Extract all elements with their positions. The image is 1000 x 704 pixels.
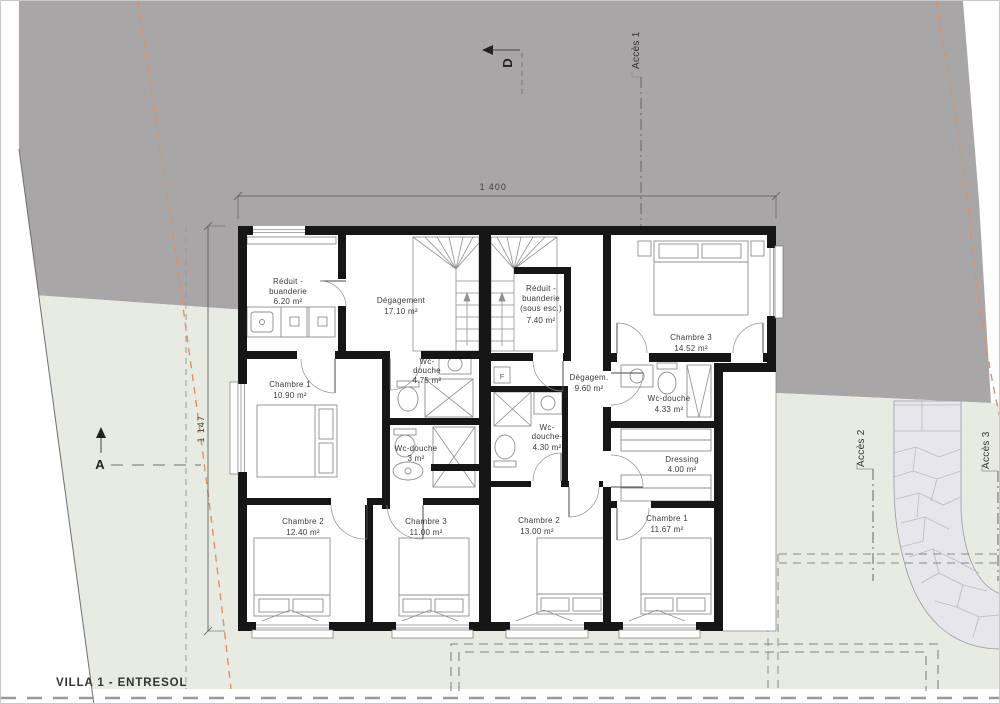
floor-plan-drawing: Accès 1 Accès 2 Accès 3 D A 1 400 1 147 (1, 1, 1000, 704)
acces-2-label: Accès 2 (856, 429, 867, 467)
f-box-label: F (500, 374, 504, 381)
shelf (247, 237, 336, 244)
svg-text:Réduit -: Réduit - (526, 284, 556, 293)
svg-text:4.30 m²: 4.30 m² (533, 443, 562, 452)
svg-text:Wc-douche: Wc-douche (648, 394, 691, 403)
dimension-width-label: 1 400 (479, 183, 506, 193)
svg-text:(sous esc.): (sous esc.) (520, 304, 562, 313)
svg-text:9.60 m²: 9.60 m² (575, 384, 604, 393)
svg-text:3 m²: 3 m² (408, 454, 425, 463)
bed-chambre3-a (399, 538, 469, 616)
svg-text:13.00 m²: 13.00 m² (520, 527, 554, 536)
room-label-reduit-a: Réduit - buanderie 6.20 m² (269, 277, 307, 306)
svg-text:14.52 m²: 14.52 m² (674, 344, 708, 353)
svg-text:Réduit -: Réduit - (273, 277, 303, 286)
toilet (398, 387, 418, 411)
svg-text:10.90 m²: 10.90 m² (273, 391, 307, 400)
svg-text:Chambre 3: Chambre 3 (405, 517, 447, 526)
svg-text:12.40 m²: 12.40 m² (286, 528, 320, 537)
svg-text:17.10 m²: 17.10 m² (384, 307, 418, 316)
window-left-chambre1 (230, 382, 247, 474)
toilet-tank (394, 429, 416, 435)
bed-chambre1-a (257, 405, 337, 477)
page-title: VILLA 1 - ENTRESOL (56, 677, 187, 689)
svg-text:Dégagem.: Dégagem. (570, 373, 609, 382)
window-right-chambre3b (767, 246, 783, 318)
svg-text:Wc-: Wc- (540, 423, 555, 432)
svg-text:Chambre 3: Chambre 3 (670, 333, 712, 342)
floor-plan-sheet: Accès 1 Accès 2 Accès 3 D A 1 400 1 147 (0, 0, 1000, 704)
section-d-label: D (500, 58, 515, 67)
bed-chambre2-a (254, 538, 330, 616)
svg-text:Chambre 2: Chambre 2 (282, 517, 324, 526)
svg-text:Wc-: Wc- (420, 357, 435, 366)
svg-text:Chambre 2: Chambre 2 (518, 516, 560, 525)
bed-chambre3-b (638, 241, 764, 315)
svg-text:Chambre 1: Chambre 1 (269, 380, 311, 389)
acces-1-label: Accès 1 (631, 31, 642, 69)
bed-chambre2-b (537, 538, 605, 614)
svg-text:buanderie: buanderie (522, 294, 560, 303)
svg-text:7.40 m²: 7.40 m² (527, 316, 556, 325)
toilet (495, 435, 515, 459)
svg-text:Dressing: Dressing (665, 455, 699, 464)
toilet-tank (657, 363, 677, 369)
svg-text:Chambre 1: Chambre 1 (646, 514, 688, 523)
svg-text:6.20 m²: 6.20 m² (274, 297, 303, 306)
svg-text:4.00 m²: 4.00 m² (668, 465, 697, 474)
svg-text:4.75 m²: 4.75 m² (413, 376, 442, 385)
svg-text:11.00 m²: 11.00 m² (410, 528, 443, 537)
room-label-dressing-b: Dressing 4.00 m² (665, 455, 699, 474)
svg-text:douche: douche (413, 366, 441, 375)
svg-text:11.67 m²: 11.67 m² (651, 525, 684, 534)
toilet (658, 372, 676, 394)
svg-text:Wc-douche: Wc-douche (395, 444, 438, 453)
window-top-reduit (253, 226, 305, 235)
svg-text:4.33 m²: 4.33 m² (655, 405, 684, 414)
svg-text:douche-: douche- (532, 432, 563, 441)
toilet-tank (494, 461, 516, 467)
acces-3-label: Accès 3 (981, 431, 992, 469)
dimension-height-label: 1 147 (197, 415, 207, 442)
section-a-label: A (95, 457, 105, 472)
svg-text:buanderie: buanderie (269, 287, 307, 296)
svg-text:Dégagement: Dégagement (377, 296, 426, 305)
bed-chambre1-b (641, 538, 711, 614)
